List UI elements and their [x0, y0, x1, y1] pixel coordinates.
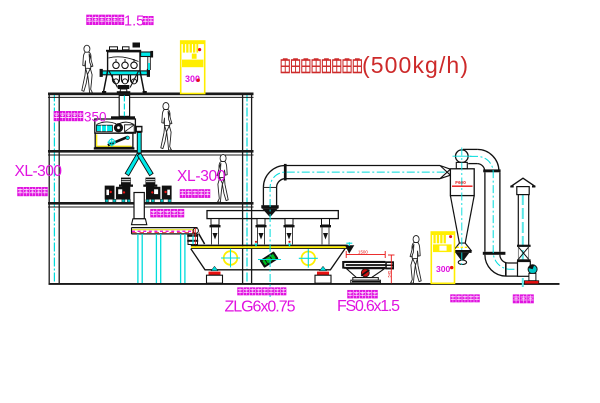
- svg-text:1500: 1500: [358, 249, 368, 254]
- svg-text:1.5: 1.5: [124, 14, 144, 30]
- svg-text:ZLG6x0.75: ZLG6x0.75: [225, 299, 296, 316]
- svg-text:300: 300: [436, 264, 451, 274]
- svg-text:545: 545: [386, 270, 391, 277]
- svg-text:540: 540: [192, 230, 196, 236]
- svg-text:(500kg/h): (500kg/h): [362, 52, 468, 78]
- svg-text:XL-300: XL-300: [177, 168, 226, 185]
- svg-text:350: 350: [84, 110, 107, 125]
- svg-text:XL-300: XL-300: [15, 163, 63, 180]
- svg-text:F600: F600: [455, 180, 466, 185]
- svg-text:FS0.6x1.5: FS0.6x1.5: [337, 298, 400, 315]
